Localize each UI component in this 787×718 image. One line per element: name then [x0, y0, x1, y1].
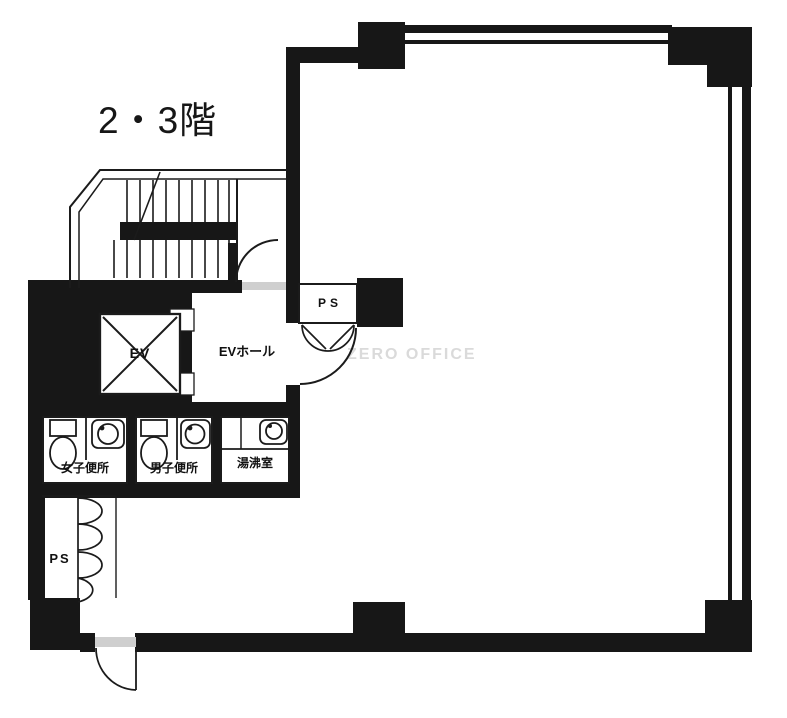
kitchen-sink-faucet-icon	[268, 424, 272, 428]
exterior-door	[95, 637, 136, 690]
exterior-door-threshold	[95, 637, 136, 647]
label-elevator-hall: EVホール	[194, 345, 300, 358]
exterior-door-swing-arc	[96, 648, 136, 690]
stair-treads-lower	[114, 240, 229, 278]
floor-title: 2・3階	[98, 90, 217, 144]
entrance-door	[300, 325, 356, 384]
label-elevator: EV	[100, 346, 180, 360]
stair-door	[236, 240, 286, 290]
staircase	[114, 172, 237, 280]
sink-faucet-icon	[188, 426, 193, 431]
label-womens-toilet: 女子便所	[43, 462, 127, 474]
label-kitchenette: 湯沸室	[221, 457, 289, 469]
stair-door-threshold	[242, 282, 286, 290]
label-ps-bottom: PS	[42, 552, 78, 565]
sink-faucet-icon	[100, 426, 105, 431]
stair-door-arc	[236, 240, 278, 282]
stair-treads-upper	[127, 180, 229, 222]
label-mens-toilet: 男子便所	[136, 462, 212, 474]
ps-bottom-room	[42, 496, 116, 602]
kitchenette-room	[221, 417, 289, 483]
floor-plan: 2・3階 ZERO OFFICE EV EVホール PS PS 女子便所 男子便…	[0, 0, 787, 718]
entrance-door-swing-arc	[300, 328, 356, 384]
label-ps-top: PS	[299, 297, 357, 309]
ps-folding-door-arcs	[78, 498, 102, 602]
